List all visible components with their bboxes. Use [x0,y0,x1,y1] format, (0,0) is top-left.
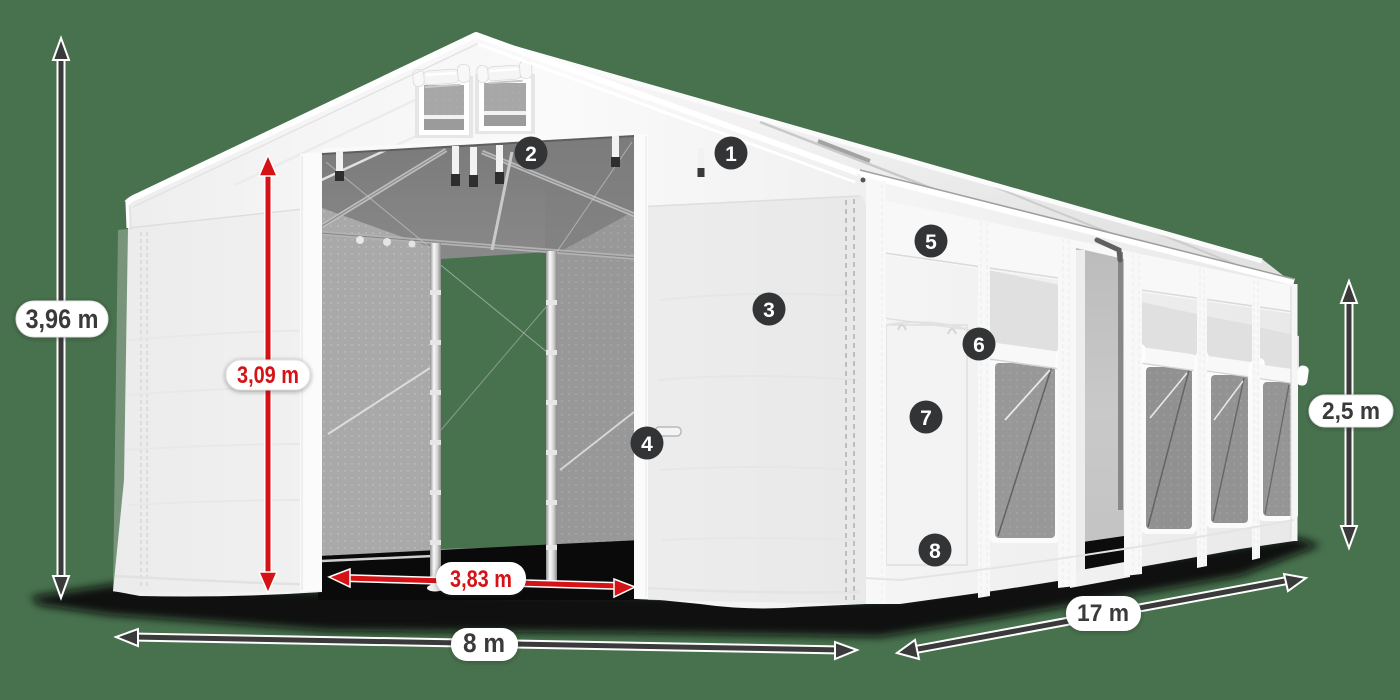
svg-text:5: 5 [925,231,937,254]
svg-text:4: 4 [641,433,653,456]
svg-text:1: 1 [725,143,737,166]
svg-text:3,96 m: 3,96 m [26,304,99,334]
svg-text:3: 3 [763,299,775,322]
svg-text:3,83 m: 3,83 m [450,566,512,593]
svg-text:8 m: 8 m [463,628,505,658]
svg-text:8: 8 [929,540,941,563]
svg-text:6: 6 [973,334,985,357]
svg-text:17 m: 17 m [1077,600,1129,627]
svg-text:7: 7 [920,407,932,430]
svg-text:3,09 m: 3,09 m [237,362,299,389]
svg-text:2,5 m: 2,5 m [1322,398,1380,425]
svg-text:2: 2 [525,143,537,166]
